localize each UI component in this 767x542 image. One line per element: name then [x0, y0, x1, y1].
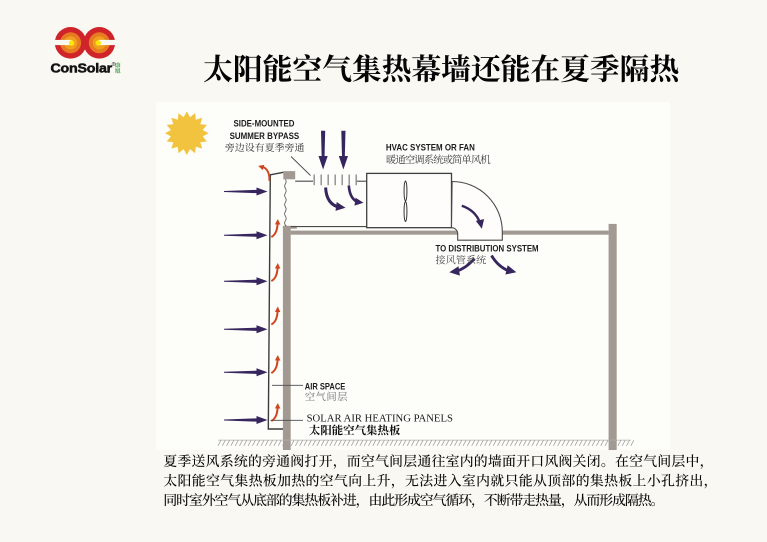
svg-text:ConSolar: ConSolar [51, 60, 113, 75]
svg-text:SUMMER BYPASS: SUMMER BYPASS [230, 131, 300, 141]
svg-text:SOLAR AIR HEATING PANELS: SOLAR AIR HEATING PANELS [307, 413, 453, 425]
svg-text:HVAC SYSTEM OR FAN: HVAC SYSTEM OR FAN [386, 143, 475, 154]
svg-text:®: ® [112, 61, 116, 68]
svg-text:AIR SPACE: AIR SPACE [305, 381, 346, 392]
svg-text:TO DISTRIBUTION SYSTEM: TO DISTRIBUTION SYSTEM [436, 244, 539, 255]
svg-text:SIDE-MOUNTED: SIDE-MOUNTED [234, 118, 295, 128]
